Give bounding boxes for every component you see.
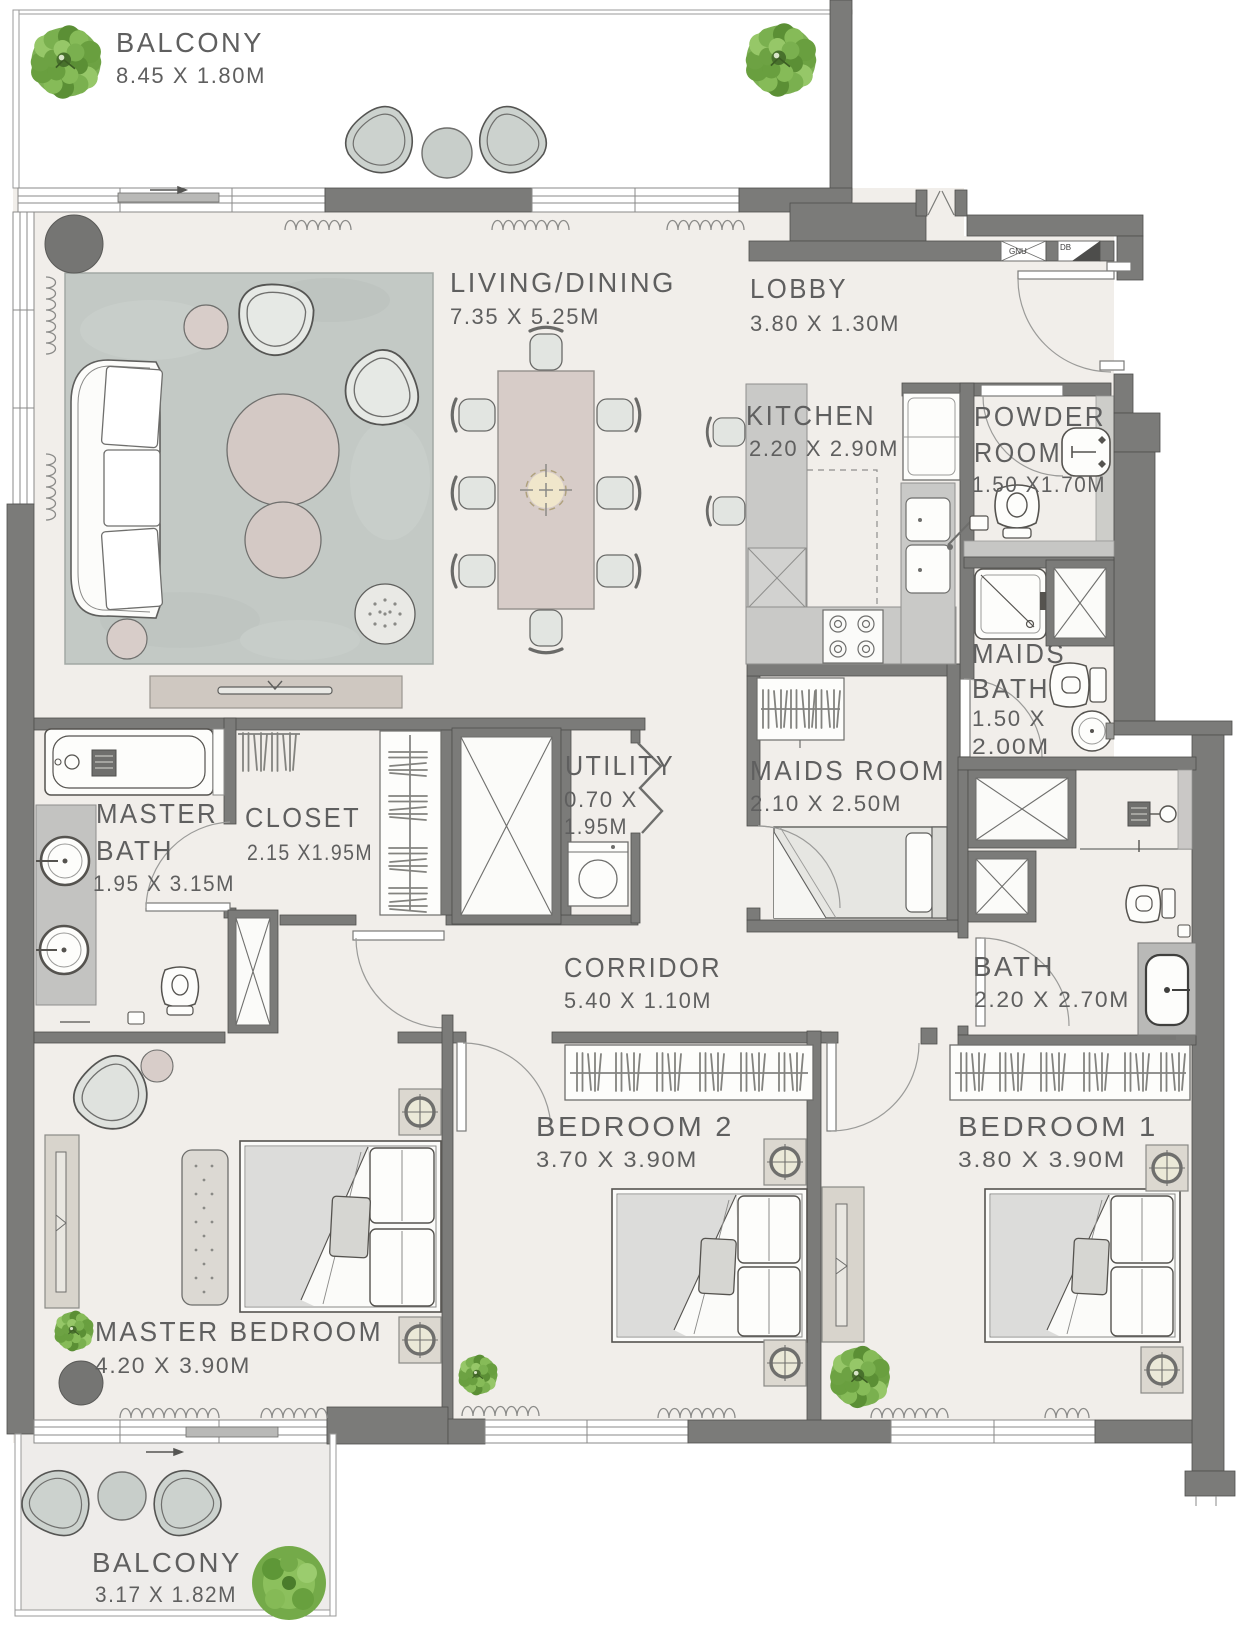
svg-text:BEDROOM 1: BEDROOM 1: [958, 1111, 1158, 1142]
svg-text:2.20 X 2.90M: 2.20 X 2.90M: [749, 436, 899, 461]
svg-text:2.15 X1.95M: 2.15 X1.95M: [247, 840, 373, 865]
svg-text:8.45 X 1.80M: 8.45 X 1.80M: [116, 63, 266, 88]
svg-text:BALCONY: BALCONY: [92, 1547, 242, 1578]
svg-text:BEDROOM 2: BEDROOM 2: [536, 1111, 734, 1142]
svg-text:LOBBY: LOBBY: [750, 273, 848, 304]
svg-text:1.50 X: 1.50 X: [972, 706, 1046, 731]
svg-text:3.80 X 3.90M: 3.80 X 3.90M: [958, 1147, 1126, 1172]
svg-text:2.00M: 2.00M: [972, 734, 1050, 759]
svg-text:LIVING/DINING: LIVING/DINING: [450, 267, 676, 298]
svg-text:2.20 X 2.70M: 2.20 X 2.70M: [974, 987, 1130, 1012]
svg-text:GNU: GNU: [1009, 247, 1027, 256]
svg-text:UTILITY: UTILITY: [565, 750, 675, 781]
svg-text:MASTER: MASTER: [96, 798, 218, 829]
svg-text:BALCONY: BALCONY: [116, 27, 264, 58]
svg-text:2.10 X 2.50M: 2.10 X 2.50M: [750, 791, 902, 816]
svg-text:DB: DB: [1060, 243, 1071, 252]
svg-text:4.20 X 3.90M: 4.20 X 3.90M: [95, 1353, 251, 1378]
svg-text:BATH: BATH: [973, 951, 1055, 982]
svg-text:KITCHEN: KITCHEN: [746, 400, 876, 431]
svg-text:3.80 X 1.30M: 3.80 X 1.30M: [750, 311, 900, 336]
svg-text:5.40 X 1.10M: 5.40 X 1.10M: [564, 988, 712, 1013]
svg-text:CORRIDOR: CORRIDOR: [564, 952, 722, 983]
svg-text:7.35 X 5.25M: 7.35 X 5.25M: [450, 304, 600, 329]
svg-text:3.70 X 3.90M: 3.70 X 3.90M: [536, 1147, 698, 1172]
svg-text:MASTER BEDROOM: MASTER BEDROOM: [95, 1316, 383, 1347]
svg-text:CLOSET: CLOSET: [245, 802, 361, 833]
svg-text:MAIDS ROOM: MAIDS ROOM: [750, 755, 946, 786]
svg-text:BATH: BATH: [96, 835, 174, 866]
svg-text:0.70 X: 0.70 X: [564, 787, 638, 812]
svg-text:ROOM: ROOM: [974, 437, 1062, 468]
svg-text:1.50 X1.70M: 1.50 X1.70M: [972, 472, 1106, 497]
svg-text:1.95M: 1.95M: [564, 814, 628, 839]
svg-text:3.17 X 1.82M: 3.17 X 1.82M: [95, 1582, 237, 1607]
svg-text:1.95 X 3.15M: 1.95 X 3.15M: [93, 871, 235, 896]
svg-text:POWDER: POWDER: [974, 401, 1106, 432]
svg-text:BATH: BATH: [972, 673, 1050, 704]
